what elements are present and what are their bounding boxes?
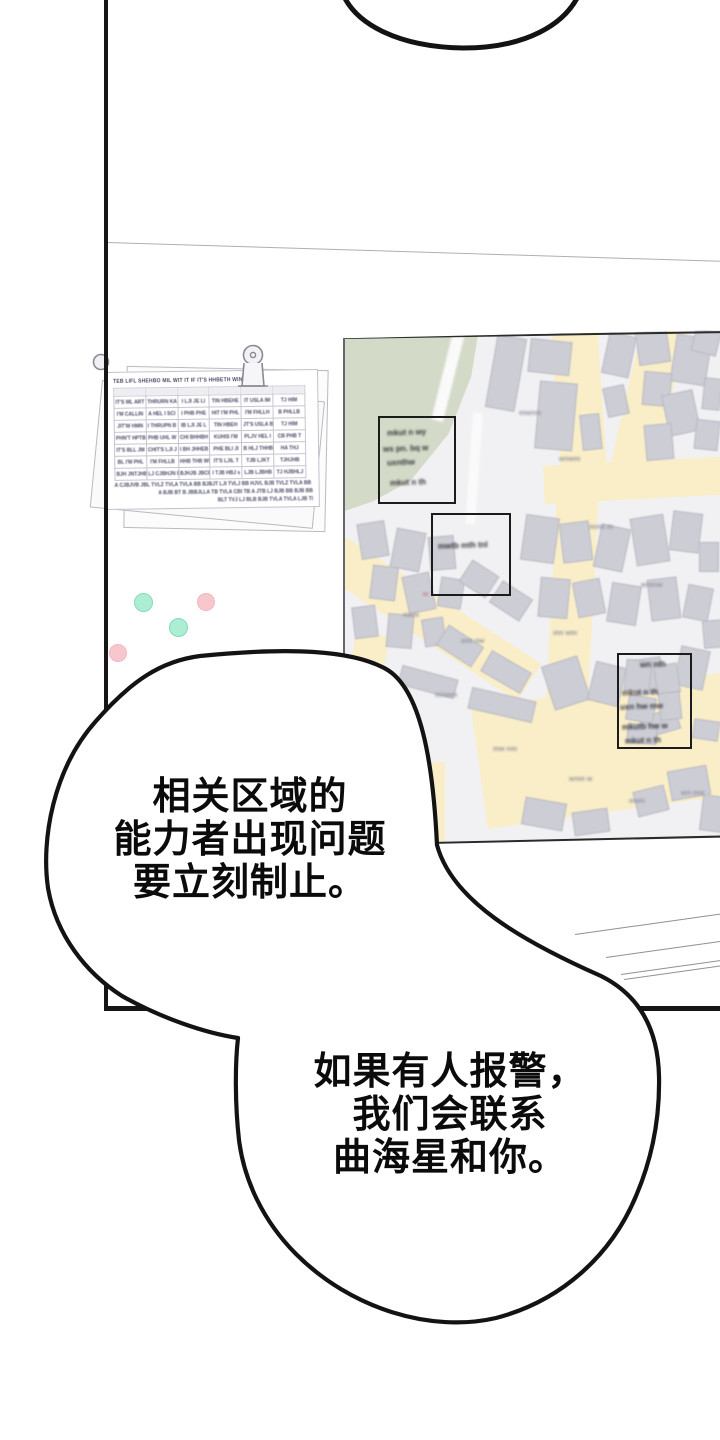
speech-bubble-1-text: 相关区域的 能力者出现问题 要立刻制止。 [58,776,442,905]
comic-page: TEB LIFL SHEHBO MIL WIT IT IF IT'S HHBET… [0,0,720,1440]
speech-bubble-top-arc [342,0,580,48]
bubble-2-line: 曲海星和你。 [262,1137,638,1180]
speech-bubble-2-text: 如果有人报警， 我们会联系 曲海星和你。 [262,1051,638,1180]
bubble-1-line: 相关区域的 [58,776,442,819]
speech-bubbles [0,0,720,1440]
bubble-1-line: 能力者出现问题 [58,819,442,862]
bubble-2-line: 我们会联系 [262,1094,638,1137]
speech-bubble-merged-outline [46,651,659,1322]
bubble-1-line: 要立刻制止。 [58,862,442,905]
bubble-2-line: 如果有人报警， [262,1051,638,1094]
